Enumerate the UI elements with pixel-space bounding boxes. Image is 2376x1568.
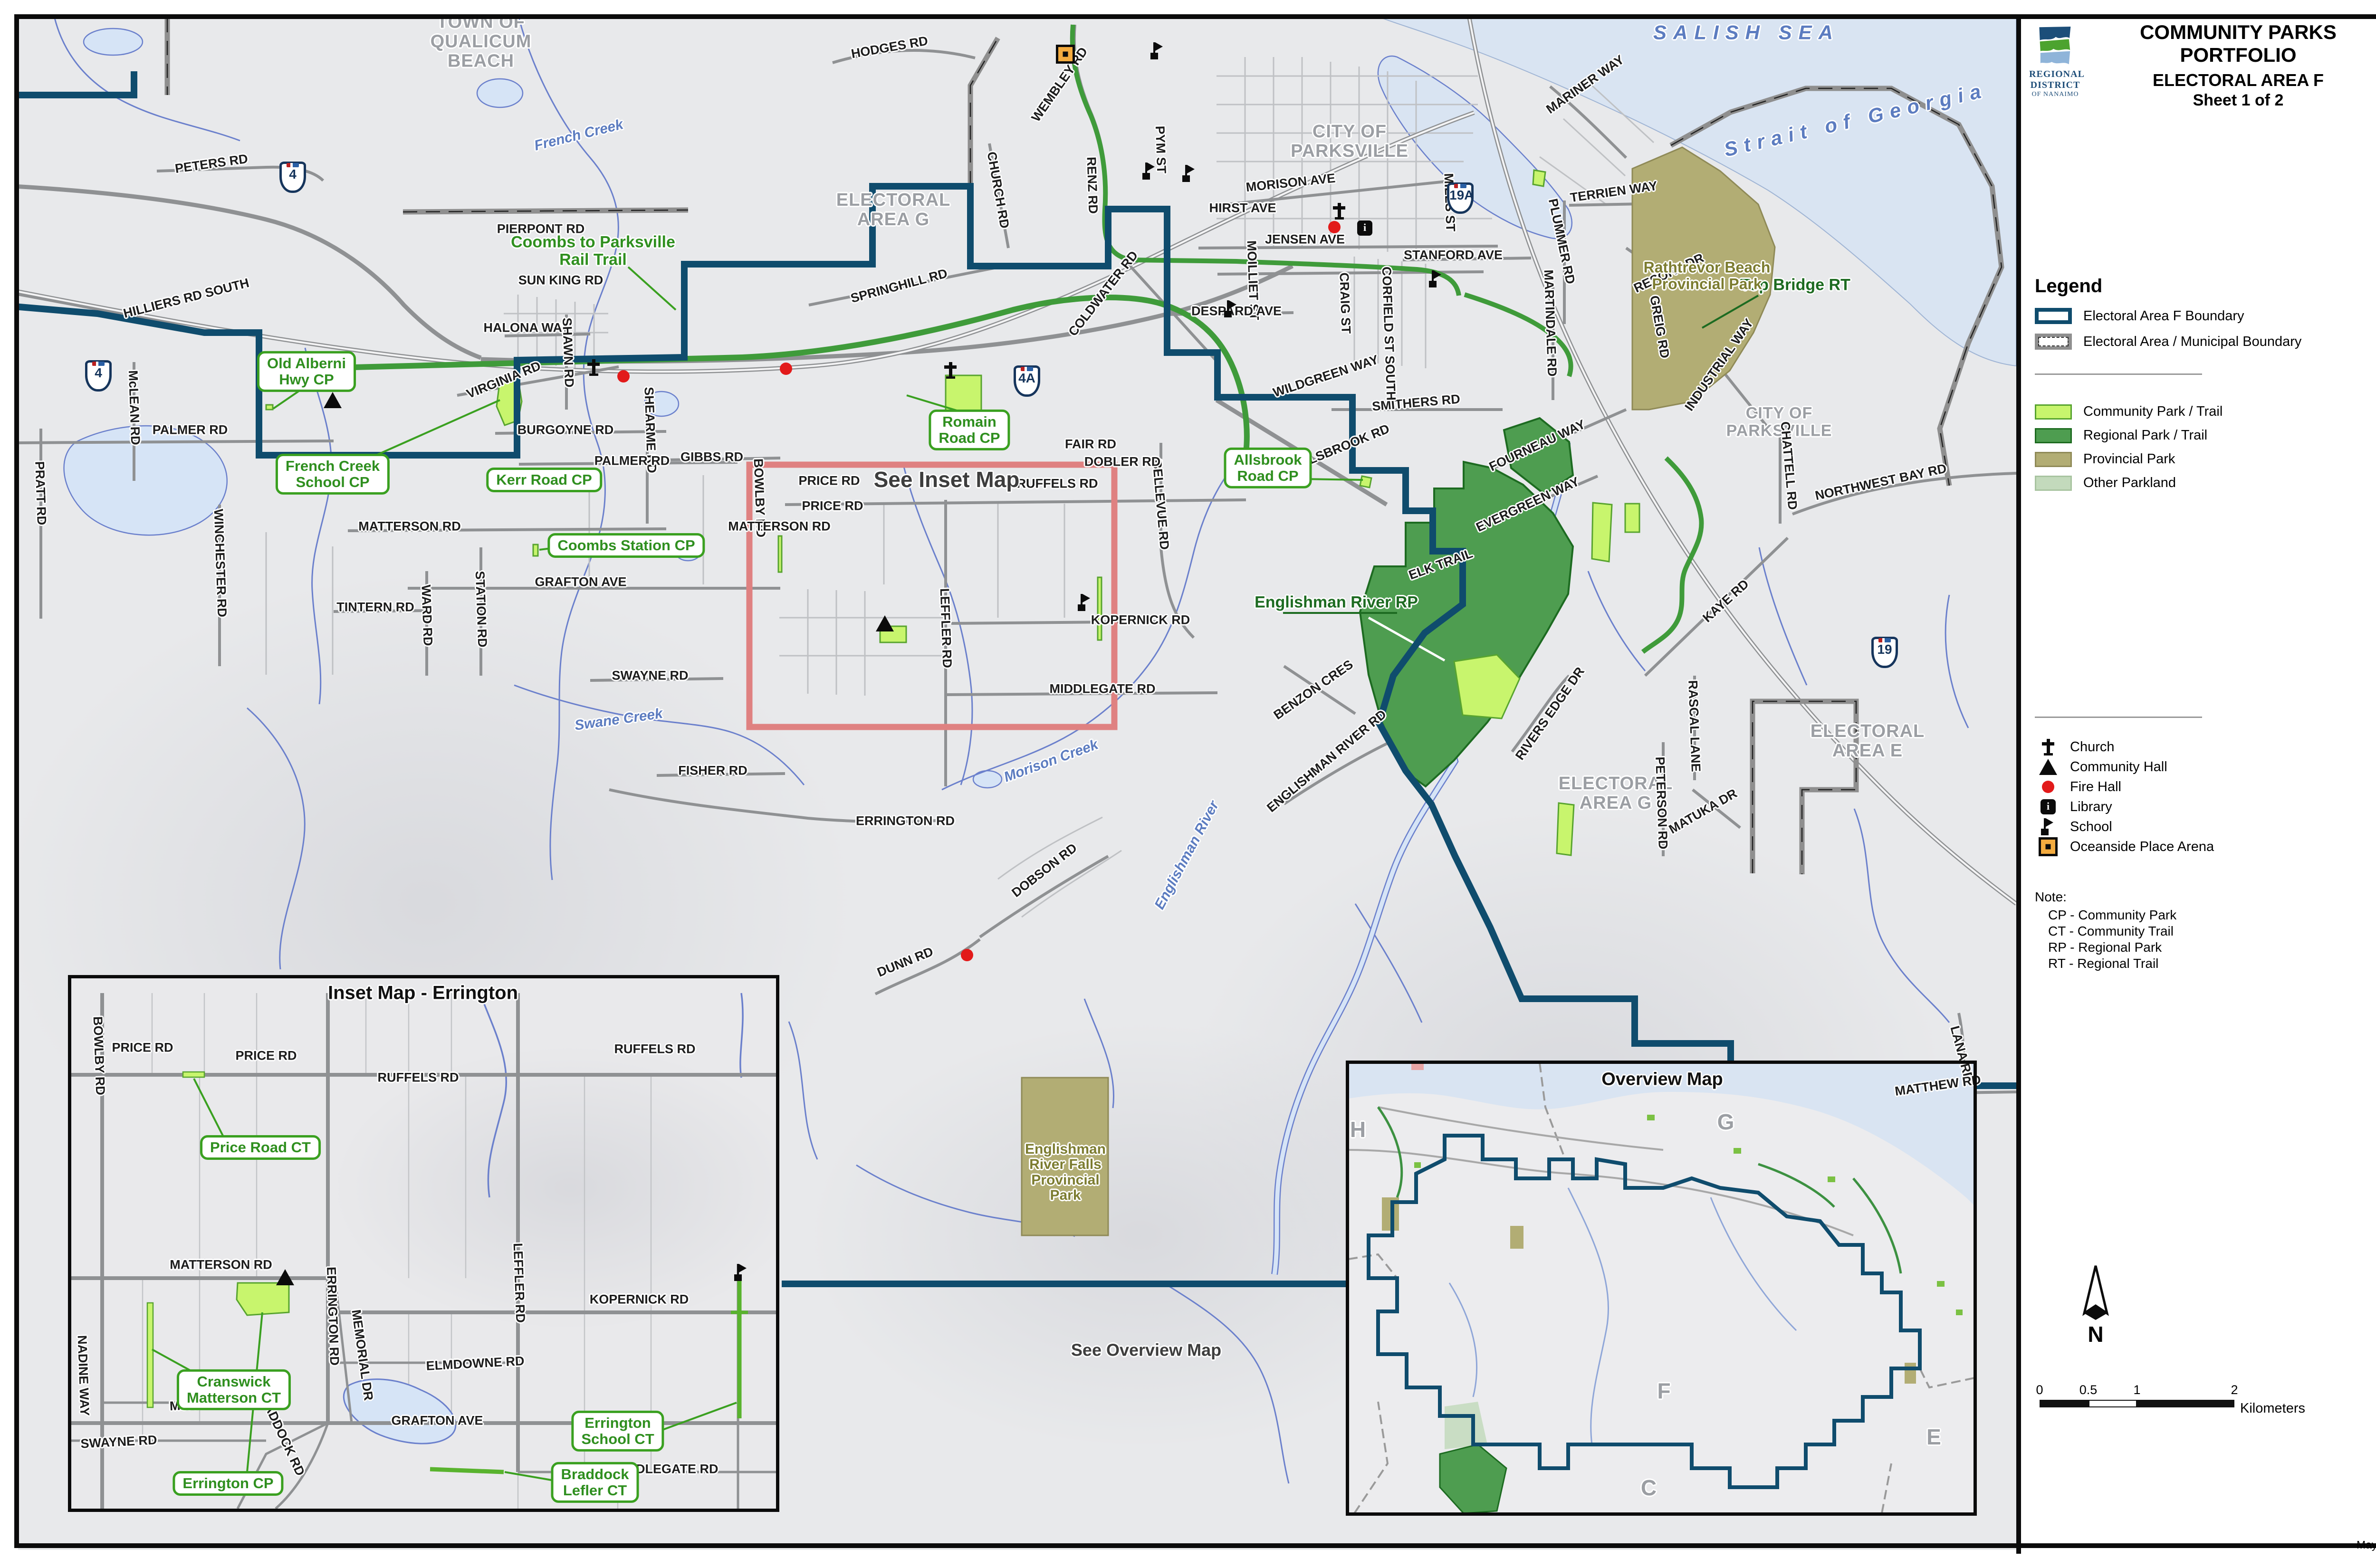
scale-tick-0: 0	[2036, 1383, 2043, 1397]
overview-letter-H: H	[1350, 1118, 1366, 1142]
legend-heading: Legend	[2035, 276, 2102, 297]
sheet-title-line1: COMMUNITY PARKS	[2072, 21, 2376, 44]
map-note-label-1: See Overview Map	[1071, 1341, 1221, 1360]
park-label-0: Coombs to Parksville Rail Trail	[511, 233, 675, 268]
fire-icon	[2038, 777, 2059, 796]
inset-road-label-10: LEFFLER RD	[510, 1243, 527, 1323]
church-icon	[1333, 203, 1345, 220]
panel-divider	[2016, 14, 2021, 1554]
fire-icon	[1328, 221, 1341, 233]
library-icon: i	[1357, 220, 1372, 236]
sheet-title-line2: PORTFOLIO	[2072, 44, 2376, 67]
legend-boundary-label-1: Electoral Area / Municipal Boundary	[2083, 334, 2301, 350]
fire-icon	[780, 363, 792, 375]
area-swatch-3	[2035, 476, 2072, 491]
arena-icon-glyph	[2039, 837, 2058, 856]
legend-symbol-label-5: Oceanside Place Arena	[2070, 839, 2214, 855]
road-label-kopernick-rd: KOPERNICK RD	[1091, 613, 1190, 627]
inset-road-label-9: KOPERNICK RD	[590, 1292, 689, 1306]
school-icon	[1150, 42, 1165, 59]
highway-shield-crest	[287, 163, 299, 167]
highway-19-shield: 19	[1871, 637, 1898, 668]
inset-park-callout-0: Price Road CT	[200, 1135, 321, 1160]
arena-icon	[1056, 45, 1075, 64]
legend-symbol-label-0: Church	[2070, 739, 2115, 755]
park-callout-4: Romain Road CP	[929, 410, 1010, 450]
overview-letter-C: C	[1641, 1476, 1657, 1500]
region-label-1: CITY OF PARKSVILLE	[1291, 122, 1408, 161]
muni-swatch	[2035, 334, 2072, 350]
legend-area-label-1: Regional Park / Trail	[2083, 428, 2207, 443]
highway-shield-crest	[1878, 638, 1891, 642]
legend-area-item-3: Other Parkland	[2035, 475, 2176, 491]
park-callout-1: French Creek School CP	[276, 454, 390, 495]
map-note-label-0: See Inset Map	[874, 468, 1020, 492]
legend-area-label-2: Provincial Park	[2083, 451, 2175, 467]
road-label-station-rd: STATION RD	[473, 571, 489, 648]
legend-symbol-label-3: Library	[2070, 799, 2112, 815]
road-label-matterson-rd: MATTERSON RD	[358, 519, 461, 533]
inset-road-label-5: MATTERSON RD	[170, 1258, 272, 1272]
legend-symbol-item-0: Church	[2038, 737, 2115, 756]
fire-icon	[617, 370, 630, 382]
road-label-ruffels-rd: RUFFELS RD	[1017, 477, 1098, 490]
legend-symbol-item-2: Fire Hall	[2038, 777, 2121, 796]
legend-symbol-label-1: Community Hall	[2070, 759, 2167, 775]
legend-symbol-item-1: Community Hall	[2038, 757, 2167, 776]
fire-icon	[961, 949, 973, 961]
legend-area-item-2: Provincial Park	[2035, 451, 2175, 467]
north-arrow: N	[2077, 1264, 2115, 1347]
road-label-palmer-rd: PALMER RD	[153, 423, 228, 437]
overview-letter-F: F	[1657, 1379, 1671, 1403]
inset-park-callout-4: Braddock Lefler CT	[551, 1462, 639, 1503]
highway-4-shield: 4	[85, 360, 112, 392]
road-label-errington-rd: ERRINGTON RD	[856, 814, 955, 828]
school-icon	[1182, 165, 1197, 182]
road-label-fair-rd: FAIR RD	[1065, 437, 1116, 451]
legend-boundary-label-0: Electoral Area F Boundary	[2083, 308, 2244, 324]
hall-icon-glyph	[2039, 759, 2057, 775]
rdn-logo-graphic	[2038, 27, 2072, 67]
road-label-renz-rd: RENZ RD	[1084, 157, 1100, 214]
region-label-3: ELECTORAL AREA G	[836, 191, 951, 229]
fire-icon-glyph	[2042, 781, 2054, 793]
highway-shield-crest	[1454, 184, 1466, 188]
park-callout-0: Old Alberni Hwy CP	[257, 351, 356, 392]
hall-icon	[876, 615, 894, 631]
hall-icon	[2038, 757, 2059, 776]
inset-map-title: Inset Map - Errington	[328, 983, 518, 1003]
road-label-grafton-ave: GRAFTON AVE	[535, 575, 626, 589]
inset-road-label-6: ERRINGTON RD	[324, 1267, 341, 1366]
church-icon	[944, 362, 957, 379]
scale-tick-2: 2	[2231, 1383, 2238, 1397]
road-label-jensen-ave: JENSEN AVE	[1265, 232, 1345, 246]
legend-area-label-3: Other Parkland	[2083, 475, 2176, 491]
legend-area-item-0: Community Park / Trail	[2035, 404, 2223, 420]
inset-park-callout-1: Cranswick Matterson CT	[177, 1369, 291, 1410]
legend-symbol-label-2: Fire Hall	[2070, 779, 2121, 795]
hall-icon	[276, 1269, 294, 1285]
legend-area-label-0: Community Park / Trail	[2083, 404, 2223, 420]
road-label-price-rd: PRICE RD	[798, 474, 860, 488]
road-label-mclean-rd: McLEAN RD	[126, 370, 143, 445]
road-label-stanford-ave: STANFORD AVE	[1404, 248, 1503, 262]
inset-park-callout-2: Errington CP	[172, 1471, 283, 1496]
park-label-3: Rathtrevor Beach Provincial Park	[1644, 259, 1771, 292]
inset-road-label-7: GRAFTON AVE	[391, 1414, 483, 1427]
water-label-4: SALISH SEA	[1653, 21, 1839, 43]
road-label-shawn-rd: SHAWN RD	[560, 317, 576, 388]
inset-road-label-1: PRICE RD	[112, 1041, 173, 1054]
church-icon	[2038, 737, 2059, 756]
arena-icon	[2038, 837, 2059, 856]
park-callout-2: Kerr Road CP	[486, 468, 602, 492]
highway-4A-shield: 4A	[1014, 365, 1040, 397]
highway-shield-crest	[92, 362, 105, 366]
region-label-5: ELECTORAL AREA E	[1811, 722, 1925, 761]
overview-letter-G: G	[1717, 1110, 1735, 1134]
road-label-middlegate-rd: MIDDLEGATE RD	[1050, 682, 1156, 696]
inset-road-label-2: PRICE RD	[235, 1049, 297, 1062]
school-icon	[734, 1264, 748, 1281]
road-label-leffler-rd: LEFFLER RD	[937, 588, 954, 669]
road-label-fisher-rd: FISHER RD	[678, 764, 747, 777]
hall-icon	[324, 392, 342, 408]
inset-park-callout-3: Errington School CT	[571, 1411, 664, 1452]
scale-tick-0.5: 0.5	[2079, 1383, 2098, 1397]
road-label-dobler-rd: DOBLER RD	[1084, 455, 1161, 468]
legend-boundary-item-0: Electoral Area F Boundary	[2035, 308, 2244, 324]
school-icon-glyph	[2041, 818, 2055, 835]
scale-bar-segment-1	[2089, 1400, 2137, 1407]
legend-divider-2	[2035, 717, 2202, 718]
road-label-pratt-rd: PRATT RD	[32, 461, 48, 525]
church-icon-glyph	[2042, 739, 2054, 755]
legend-symbol-item-3: iLibrary	[2038, 797, 2112, 816]
road-label-price-rd: PRICE RD	[802, 499, 863, 513]
note-line-2: RP - Regional Park	[2048, 940, 2162, 955]
sheet-subtitle: ELECTORAL AREA F	[2072, 70, 2376, 90]
legend-symbol-label-4: School	[2070, 819, 2112, 835]
road-label-craig-st: CRAIG ST	[1337, 272, 1353, 334]
note-heading: Note:	[2035, 889, 2067, 905]
school-icon	[1224, 300, 1238, 317]
scale-bar-segment-2	[2137, 1400, 2234, 1407]
road-label-gibbs-rd: GIBBS RD	[680, 450, 743, 464]
note-line-1: CT - Community Trail	[2048, 924, 2174, 939]
navy-swatch	[2035, 308, 2072, 324]
map-sheet: TOWN OF QUALICUM BEACHCITY OF PARKSVILLE…	[0, 0, 2376, 1568]
map-date: May 2024	[2338, 1539, 2376, 1551]
school-icon	[1429, 270, 1443, 287]
overview-map-title: Overview Map	[1601, 1070, 1723, 1089]
area-swatch-1	[2035, 428, 2072, 443]
inset-map-geometry	[70, 977, 808, 1510]
inset-road-label-12: NADINE WAY	[75, 1335, 91, 1416]
legend-symbol-item-5: Oceanside Place Arena	[2038, 837, 2214, 856]
legend-area-item-1: Regional Park / Trail	[2035, 428, 2207, 443]
highway-shield-crest	[1021, 367, 1033, 371]
scale-tick-1: 1	[2133, 1383, 2140, 1397]
note-line-3: RT - Regional Trail	[2048, 956, 2158, 971]
inset-road-label-3: RUFFELS RD	[378, 1071, 459, 1084]
road-label-hirst-ave: HIRST AVE	[1209, 201, 1276, 215]
scale-bar-segment-0	[2040, 1400, 2089, 1407]
region-label-0: TOWN OF QUALICUM BEACH	[431, 12, 532, 71]
note-line-0: CP - Community Park	[2048, 908, 2176, 923]
road-label-halona-way: HALONA WAY	[483, 321, 569, 335]
legend-boundary-item-1: Electoral Area / Municipal Boundary	[2035, 334, 2301, 350]
road-label-swayne-rd: SWAYNE RD	[612, 669, 688, 682]
legend-symbol-item-4: School	[2038, 817, 2112, 836]
highway-19A-shield: 19A	[1447, 182, 1474, 214]
park-callout-3: Coombs Station CP	[547, 533, 705, 558]
library-icon-glyph: i	[2041, 799, 2056, 814]
area-swatch-0	[2035, 404, 2072, 420]
road-label-ward-rd: WARD RD	[419, 584, 435, 646]
road-label-rascal-lane: RASCAL LANE	[1686, 680, 1703, 772]
overview-map-geometry	[1348, 1063, 1974, 1513]
road-label-palmer-rd: PALMER RD	[594, 454, 670, 468]
road-label-tintern-rd: TINTERN RD	[336, 600, 414, 614]
park-label-4: Englishman River Falls Provincial Park	[1025, 1142, 1106, 1204]
school-icon	[2038, 817, 2059, 836]
highway-4-shield: 4	[279, 162, 306, 193]
muni-swatch-dash	[2038, 337, 2069, 346]
park-label-2: Englishman River RP	[1255, 594, 1418, 612]
sheet-number: Sheet 1 of 2	[2072, 91, 2376, 110]
legend-divider-1	[2035, 373, 2202, 375]
school-icon	[1142, 163, 1157, 180]
scale-unit: Kilometers	[2240, 1401, 2305, 1416]
overview-letter-E: E	[1926, 1425, 1942, 1449]
school-icon	[1078, 594, 1092, 611]
library-icon: i	[2038, 797, 2059, 816]
road-label-sun-king-rd: SUN KING RD	[518, 273, 604, 287]
north-arrow-icon	[2077, 1264, 2115, 1326]
area-swatch-2	[2035, 452, 2072, 467]
road-label-matterson-rd: MATTERSON RD	[728, 519, 831, 533]
road-label-peterson-rd: PETERSON RD	[1653, 756, 1670, 850]
inset-road-label-4: RUFFELS RD	[614, 1042, 696, 1056]
inset-road-label-0: BOWLBY RD	[91, 1016, 107, 1096]
road-label-burgoyne-rd: BURGOYNE RD	[517, 423, 614, 437]
church-icon	[587, 359, 600, 376]
park-callout-5: Allsbrook Road CP	[1224, 448, 1312, 488]
